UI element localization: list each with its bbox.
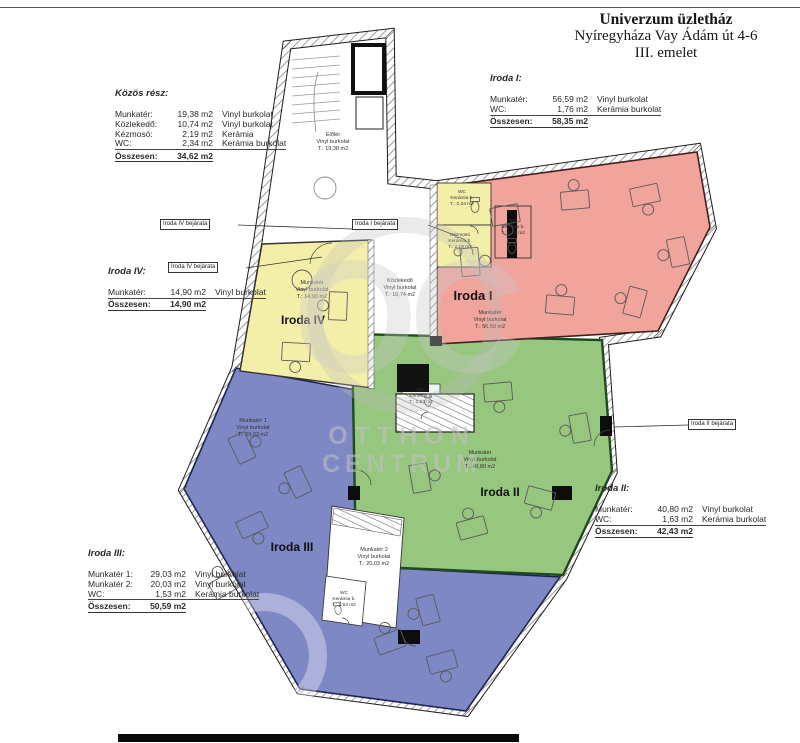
svg-text:T.: 10,74 m2: T.: 10,74 m2 <box>385 292 415 298</box>
legend-iroda1-heading: Iroda I: <box>490 73 661 84</box>
svg-text:Vinyl burkolat: Vinyl burkolat <box>474 317 507 323</box>
svg-text:T.: 56,59 m2: T.: 56,59 m2 <box>475 324 505 330</box>
legend-total: Összesen:14,90 m2 <box>108 300 206 311</box>
svg-text:T.: 1,53 m2: T.: 1,53 m2 <box>332 602 356 608</box>
legend-iroda3: Iroda III: Munkatér 1:29,03 m2Vinyl burk… <box>88 548 259 613</box>
legend-row: WC:2,34 m2Kerámia burkolat <box>115 139 286 150</box>
svg-text:T.: 19,38 m2: T.: 19,38 m2 <box>318 146 348 152</box>
legend-kozos: Közös rész: Munkatér:19,38 m2Vinyl burko… <box>115 88 286 162</box>
legend-iroda3-heading: Iroda III: <box>88 548 259 559</box>
svg-text:Vinyl burkolat: Vinyl burkolat <box>296 287 329 293</box>
elevator <box>353 45 384 93</box>
legend-row: Munkatér:14,90 m2Vinyl burkolat <box>108 288 266 299</box>
label-iroda4: Iroda IV <box>281 313 325 327</box>
svg-text:Vinyl burkolat: Vinyl burkolat <box>317 139 350 145</box>
scan-bottom-bar <box>118 734 519 742</box>
svg-text:T.: 1,76 m2: T.: 1,76 m2 <box>501 230 525 236</box>
legend-total: Összesen:58,35 m2 <box>490 117 588 128</box>
svg-text:T.: 1,63 m2: T.: 1,63 m2 <box>409 399 433 405</box>
svg-text:WC: WC <box>458 189 467 195</box>
svg-text:Vinyl burkolat: Vinyl burkolat <box>237 425 270 431</box>
svg-text:Kézmosó: Kézmosó <box>450 232 470 238</box>
legend-iroda4: Iroda IV: Munkatér:14,90 m2Vinyl burkola… <box>108 266 266 311</box>
legend-total: Összesen:42,43 m2 <box>595 527 693 538</box>
svg-text:WC: WC <box>509 218 518 224</box>
legend-total: Összesen:50,59 m2 <box>88 602 186 613</box>
service-notch <box>322 506 404 628</box>
svg-text:T.: 14,90 m2: T.: 14,90 m2 <box>297 294 327 300</box>
svg-text:T.: 40,80 m2: T.: 40,80 m2 <box>465 464 495 470</box>
entrance-tag-iroda4-a: Iroda IV bejárata <box>160 219 210 230</box>
svg-text:T.: 20,03 m2: T.: 20,03 m2 <box>359 561 389 567</box>
svg-text:Vinyl burkolat: Vinyl burkolat <box>464 457 497 463</box>
legend-row: WC:1,53 m2Kerámia burkolat <box>88 590 259 601</box>
svg-text:WC: WC <box>340 590 349 596</box>
svg-text:Munkatér: Munkatér <box>479 310 502 316</box>
stairs <box>396 394 474 432</box>
entrance-tag-iroda4-b: Iroda IV bejárata <box>168 262 218 273</box>
svg-text:Munkatér: Munkatér <box>469 450 492 456</box>
svg-text:T.: 2,34 m2: T.: 2,34 m2 <box>450 201 474 207</box>
entrance-tag-iroda1: Iroda I bejárata <box>352 219 398 230</box>
svg-text:Kerámia b.: Kerámia b. <box>409 393 432 399</box>
svg-text:Vinyl burkolat: Vinyl burkolat <box>384 285 417 291</box>
svg-text:Kerámia b.: Kerámia b. <box>448 238 471 244</box>
legend-iroda2: Iroda II: Munkatér:40,80 m2Vinyl burkola… <box>595 483 766 538</box>
legend-iroda1: Iroda I: Munkatér:56,59 m2Vinyl burkolat… <box>490 73 661 128</box>
legend-iroda2-heading: Iroda II: <box>595 483 766 494</box>
label-iroda1: Iroda I <box>453 288 492 303</box>
svg-text:Közlekedő: Közlekedő <box>387 278 413 284</box>
entrance-tag-iroda2: Iroda II bejárata <box>688 419 736 430</box>
svg-text:Kerámia b.: Kerámia b. <box>501 224 524 230</box>
svg-text:Munkatér 2: Munkatér 2 <box>360 547 388 553</box>
svg-text:T.: 29,03 m2: T.: 29,03 m2 <box>238 432 268 438</box>
svg-text:T.: 2,19 m2: T.: 2,19 m2 <box>448 244 472 250</box>
svg-text:Munkatér: Munkatér <box>301 280 324 286</box>
svg-text:Kerámia b.: Kerámia b. <box>332 596 355 602</box>
legend-kozos-heading: Közös rész: <box>115 88 286 99</box>
svg-text:Előtér: Előtér <box>326 132 341 138</box>
legend-row: WC:1,76 m2Kerámia burkolat <box>490 105 661 116</box>
svg-text:WC: WC <box>417 387 426 393</box>
legend-row: WC:1,63 m2Kerámia burkolat <box>595 515 766 526</box>
legend-total: Összesen:34,62 m2 <box>115 152 213 163</box>
svg-text:Kerámia b.: Kerámia b. <box>450 195 473 201</box>
label-iroda2: Iroda II <box>480 485 519 499</box>
label-iroda3: Iroda III <box>271 540 314 554</box>
svg-text:Munkatér 1: Munkatér 1 <box>239 418 267 424</box>
svg-text:Vinyl burkolat: Vinyl burkolat <box>358 554 391 560</box>
